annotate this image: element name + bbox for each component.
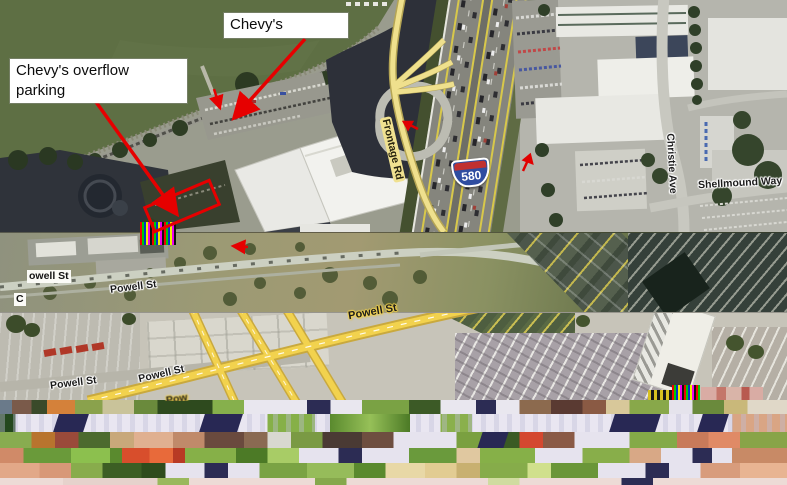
annotation-arrow-overflow bbox=[96, 102, 176, 213]
callout-overflow-parking: Chevy's overflow parking bbox=[10, 59, 187, 103]
map-canvas[interactable]: Pow Frontage Rd 580 Christie Ave Shellmo… bbox=[0, 0, 787, 485]
annotation-arrow-small bbox=[214, 89, 220, 108]
callout-chevys: Chevy's bbox=[224, 13, 348, 38]
annotation-arrow-band2 bbox=[233, 246, 248, 247]
annotation-arrow-chevys bbox=[235, 39, 305, 117]
